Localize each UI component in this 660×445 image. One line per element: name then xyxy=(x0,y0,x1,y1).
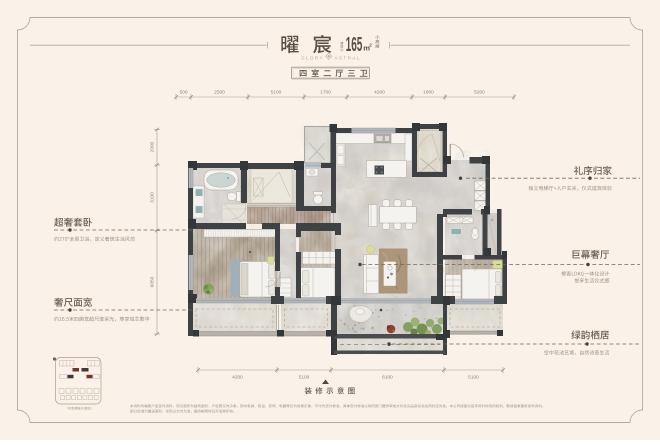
svg-text:5200: 5200 xyxy=(474,90,485,96)
svg-text:4200: 4200 xyxy=(374,90,385,96)
svg-text:ASTRAL: ASTRAL xyxy=(335,55,361,60)
svg-text:5100: 5100 xyxy=(271,90,282,96)
svg-text:165: 165 xyxy=(346,34,363,56)
svg-text:4200: 4200 xyxy=(232,375,243,381)
svg-text:3100: 3100 xyxy=(150,192,156,203)
svg-text:1800: 1800 xyxy=(423,90,434,96)
svg-text:5100: 5100 xyxy=(299,375,310,381)
svg-text:2: 2 xyxy=(369,43,372,48)
svg-text:6100: 6100 xyxy=(382,375,393,381)
svg-text:6050: 6050 xyxy=(150,276,156,287)
svg-text:2500: 2500 xyxy=(214,90,225,96)
svg-text:GLORY: GLORY xyxy=(301,55,324,60)
svg-text:2000: 2000 xyxy=(150,141,156,152)
svg-text:5100: 5100 xyxy=(468,375,479,381)
svg-text:1700: 1700 xyxy=(320,90,331,96)
svg-text:500: 500 xyxy=(179,90,187,96)
